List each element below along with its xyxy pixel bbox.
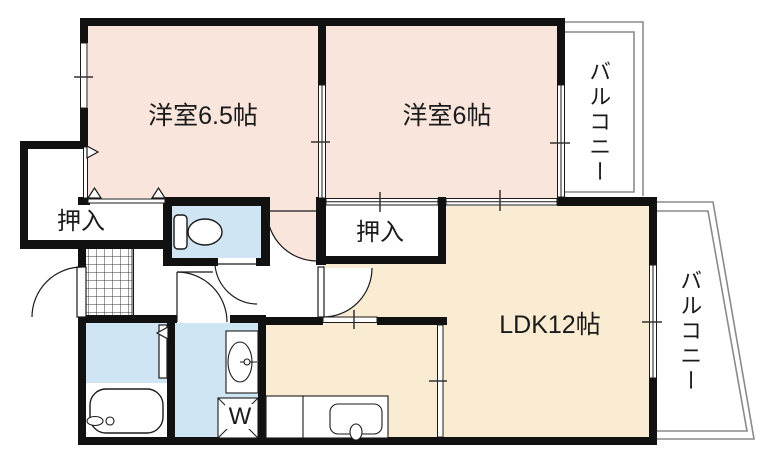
bathtub-faucet xyxy=(87,417,103,426)
closet-left-label: 押入 xyxy=(41,209,121,234)
vanity-faucet-knob xyxy=(244,359,250,365)
bathtub-drain xyxy=(106,417,114,425)
balcony-top-label: バルコニー xyxy=(586,50,610,195)
kitchen-pass-opening xyxy=(323,317,377,323)
washer-label: W xyxy=(225,404,255,429)
closet-center-label: 押入 xyxy=(340,220,420,245)
toilet-bowl xyxy=(188,219,222,245)
room1-west-window xyxy=(81,43,88,108)
balcony-right-label: バルコニー xyxy=(677,256,701,406)
genkan-tile-grid xyxy=(85,248,132,317)
room1-door-nook-strip xyxy=(270,198,317,212)
room1-door-swing-fill xyxy=(267,211,317,261)
closet1-front-doors xyxy=(88,199,165,203)
ldk-door-leaf xyxy=(318,267,324,317)
entry-door-swing xyxy=(32,267,82,317)
kitchen-faucet xyxy=(350,424,362,440)
bathtub xyxy=(90,389,163,433)
ldk-label: LDK12帖 xyxy=(470,312,630,338)
toilet-tank xyxy=(174,215,187,249)
entry-door-leaf xyxy=(77,267,86,317)
room1-label: 洋室6.5帖 xyxy=(120,103,286,129)
room2-label: 洋室6帖 xyxy=(368,103,526,129)
floor-plan: 洋室6.5帖 洋室6帖 LDK12帖 押入 押入 バルコニー バルコニー W xyxy=(0,0,772,465)
balcony-right-outer-rail xyxy=(657,202,754,439)
